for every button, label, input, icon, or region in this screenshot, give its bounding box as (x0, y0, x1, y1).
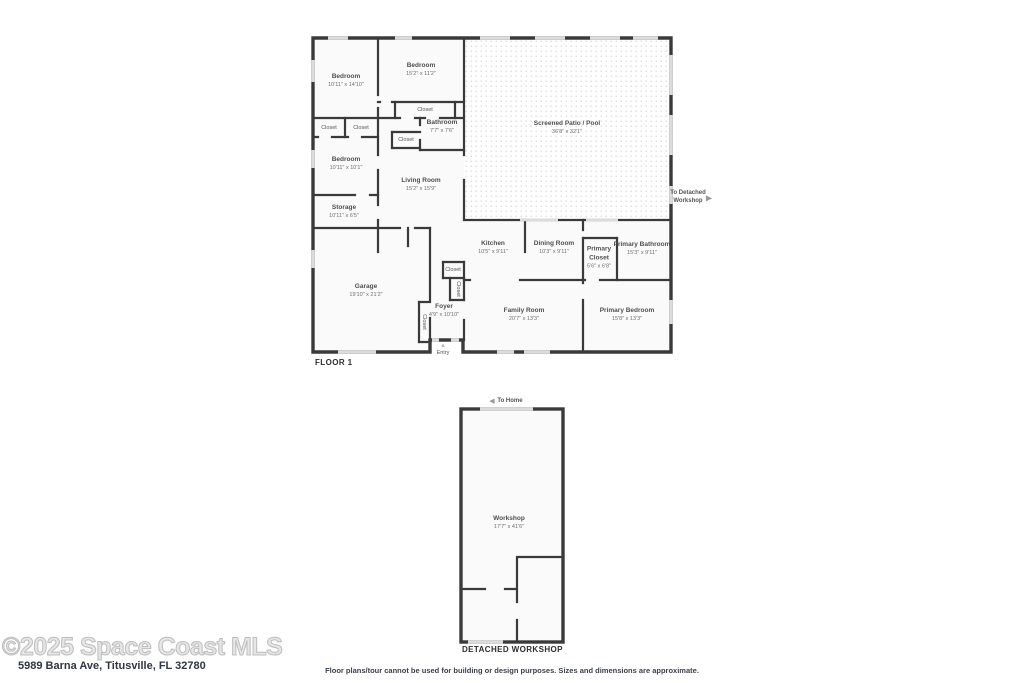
closet-label: Closet (321, 125, 337, 131)
closet-label: Closet (421, 314, 427, 330)
floorplan-walls-svg (0, 0, 1024, 683)
disclaimer-text: Floor plans/tour cannot be used for buil… (325, 666, 699, 675)
closet-label: Closet (353, 125, 369, 131)
closet-label: Closet (417, 107, 433, 113)
detached-workshop-title: DETACHED WORKSHOP (462, 645, 563, 654)
property-address: 5989 Barna Ave, Titusville, FL 32780 (18, 660, 206, 672)
to-detached-workshop-label: To Detached Workshop (666, 189, 710, 205)
to-home-label: To Home (497, 397, 522, 405)
closet-label: Closet (455, 281, 461, 297)
closet-label: Closet (445, 267, 461, 273)
up-triangle-icon: ▲ (440, 343, 446, 349)
closet-label: Closet (398, 137, 414, 143)
entry-label: Entry (437, 350, 450, 356)
right-arrow-icon: ▶ (706, 194, 712, 203)
mls-watermark: ©2025 Space Coast MLS (2, 633, 282, 662)
floorplan-page: Bedroom 10'11" x 14'10" Bedroom 15'2" x … (0, 0, 1024, 683)
left-arrow-icon: ◀ (489, 397, 494, 405)
floor1-title: FLOOR 1 (315, 358, 352, 367)
